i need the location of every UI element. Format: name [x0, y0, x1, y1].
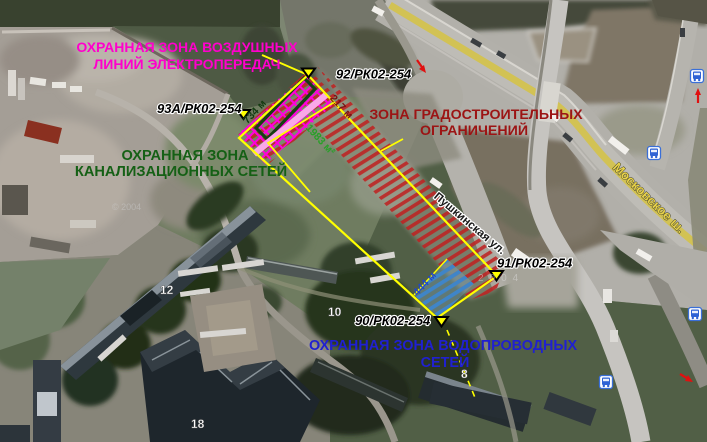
svg-text:10: 10: [328, 305, 342, 319]
svg-text:91/РК02-254: 91/РК02-254: [497, 256, 573, 271]
svg-text:ЗОНА ГРАДОСТРОИТЕЛЬНЫХ: ЗОНА ГРАДОСТРОИТЕЛЬНЫХ: [369, 107, 583, 123]
svg-text:12: 12: [160, 283, 174, 297]
svg-text:КАНАЛИЗАЦИОННЫХ СЕТЕЙ: КАНАЛИЗАЦИОННЫХ СЕТЕЙ: [75, 162, 287, 180]
svg-text:18: 18: [191, 417, 205, 431]
svg-text:ОГРАНИЧЕНИЙ: ОГРАНИЧЕНИЙ: [420, 121, 528, 139]
svg-text:ОХРАННАЯ ЗОНА: ОХРАННАЯ ЗОНА: [121, 148, 249, 164]
svg-text:92/РК02-254: 92/РК02-254: [336, 67, 412, 82]
svg-text:8: 8: [461, 367, 468, 381]
svg-text:ОХРАННАЯ ЗОНА ВОДОПРОВОДНЫХ: ОХРАННАЯ ЗОНА ВОДОПРОВОДНЫХ: [309, 338, 577, 354]
svg-text:93А/РК02-254: 93А/РК02-254: [157, 101, 242, 116]
svg-text:2004: 2004: [478, 273, 524, 284]
svg-text:ОХРАННАЯ ЗОНА ВОЗДУШНЫХ: ОХРАННАЯ ЗОНА ВОЗДУШНЫХ: [76, 39, 298, 55]
svg-text:ЛИНИЙ ЭЛЕКТРОПЕРЕДАЧ: ЛИНИЙ ЭЛЕКТРОПЕРЕДАЧ: [93, 55, 280, 72]
svg-text:© 2004: © 2004: [112, 202, 141, 212]
svg-text:90/РК02-254: 90/РК02-254: [355, 313, 431, 328]
